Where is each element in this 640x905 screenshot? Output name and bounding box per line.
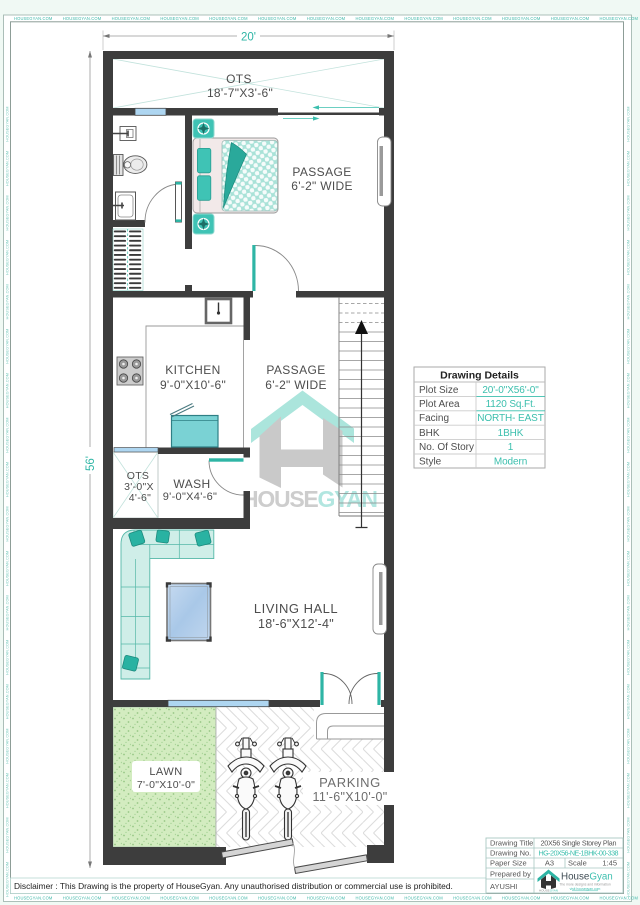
svg-text:BHK: BHK	[419, 428, 440, 439]
svg-text:Drawing Details: Drawing Details	[440, 370, 519, 382]
svg-text:KITCHEN: KITCHEN	[165, 363, 220, 377]
svg-text:1:45: 1:45	[602, 859, 617, 868]
svg-text:Disclaimer : This Drawing is t: Disclaimer : This Drawing is the propert…	[14, 881, 453, 891]
svg-text:1120 Sq.Ft.: 1120 Sq.Ft.	[486, 399, 536, 410]
svg-text:The more designs and informati: The more designs and information	[559, 883, 611, 887]
svg-text:Facing: Facing	[419, 413, 449, 424]
svg-text:Paper Size: Paper Size	[490, 859, 527, 868]
svg-text:Drawing No.: Drawing No.	[490, 849, 531, 858]
svg-text:18'-7"X3'-6": 18'-7"X3'-6"	[207, 86, 273, 100]
svg-text:20X56 Single Storey Plan: 20X56 Single Storey Plan	[541, 839, 617, 848]
svg-text:HOUSEGYAN.COM HOUSEGYAN: HOUSEGYAN.COM HOUSEGYAN.COM HOUSEGYAN.CO…	[626, 97, 630, 897]
svg-text:PASSAGE: PASSAGE	[266, 363, 325, 377]
svg-text:6'-2" WIDE: 6'-2" WIDE	[291, 179, 353, 193]
svg-text:56': 56'	[85, 456, 97, 471]
svg-text:11'-6"X10'-0": 11'-6"X10'-0"	[313, 790, 388, 804]
svg-text:7'-0"X10'-0": 7'-0"X10'-0"	[137, 779, 195, 791]
svg-text:18'-6"X12'-4": 18'-6"X12'-4"	[258, 617, 334, 631]
svg-text:HouseGyan: HouseGyan	[561, 872, 613, 883]
svg-text:9'-0"X4'-6": 9'-0"X4'-6"	[163, 491, 217, 503]
svg-text:HG-20X56-NE-1BHK-00-338: HG-20X56-NE-1BHK-00-338	[539, 849, 619, 858]
svg-text:HOUSEGYAN.COM HOUSEGYAN: HOUSEGYAN.COM HOUSEGYAN.COM HOUSEGYAN.CO…	[14, 896, 640, 901]
svg-text:HOUSEGYAN: HOUSEGYAN	[539, 889, 558, 893]
svg-text:9'-0"X10'-6": 9'-0"X10'-6"	[160, 378, 226, 392]
svg-text:HOUSEGYAN.COM HOUSEGYAN: HOUSEGYAN.COM HOUSEGYAN.COM HOUSEGYAN.CO…	[14, 16, 640, 21]
svg-text:PASSAGE: PASSAGE	[292, 165, 351, 179]
svg-text:LIVING HALL: LIVING HALL	[254, 601, 338, 616]
svg-text:Prepared by: Prepared by	[490, 869, 531, 878]
svg-text:AYUSHI: AYUSHI	[490, 882, 517, 891]
svg-text:LAWN: LAWN	[149, 766, 182, 778]
svg-text:Plot Area: Plot Area	[419, 399, 460, 410]
svg-text:20'-0"X56'-0": 20'-0"X56'-0"	[482, 385, 539, 396]
svg-text:PARKING: PARKING	[319, 775, 381, 790]
svg-text:visit housegyan.com: visit housegyan.com	[570, 887, 601, 891]
svg-text:HOUSEGYAN: HOUSEGYAN	[242, 486, 378, 512]
svg-text:4'-6": 4'-6"	[129, 492, 151, 504]
svg-text:WASH: WASH	[173, 477, 210, 491]
svg-text:Scale: Scale	[568, 859, 587, 868]
svg-text:1: 1	[508, 442, 514, 453]
svg-text:No. Of Story: No. Of Story	[419, 442, 474, 453]
svg-text:Plot Size: Plot Size	[419, 385, 459, 396]
svg-text:Modern: Modern	[494, 456, 527, 467]
svg-text:NORTH- EAST: NORTH- EAST	[477, 413, 544, 424]
svg-text:A3: A3	[545, 859, 554, 868]
svg-text:6'-2" WIDE: 6'-2" WIDE	[265, 378, 327, 392]
svg-text:OTS: OTS	[226, 72, 252, 86]
svg-text:Drawing Title: Drawing Title	[490, 839, 533, 848]
svg-text:Style: Style	[419, 456, 442, 467]
svg-text:1BHK: 1BHK	[498, 428, 524, 439]
svg-text:HOUSEGYAN.COM HOUSEGYAN: HOUSEGYAN.COM HOUSEGYAN.COM HOUSEGYAN.CO…	[5, 97, 9, 897]
svg-text:20': 20'	[241, 32, 256, 44]
